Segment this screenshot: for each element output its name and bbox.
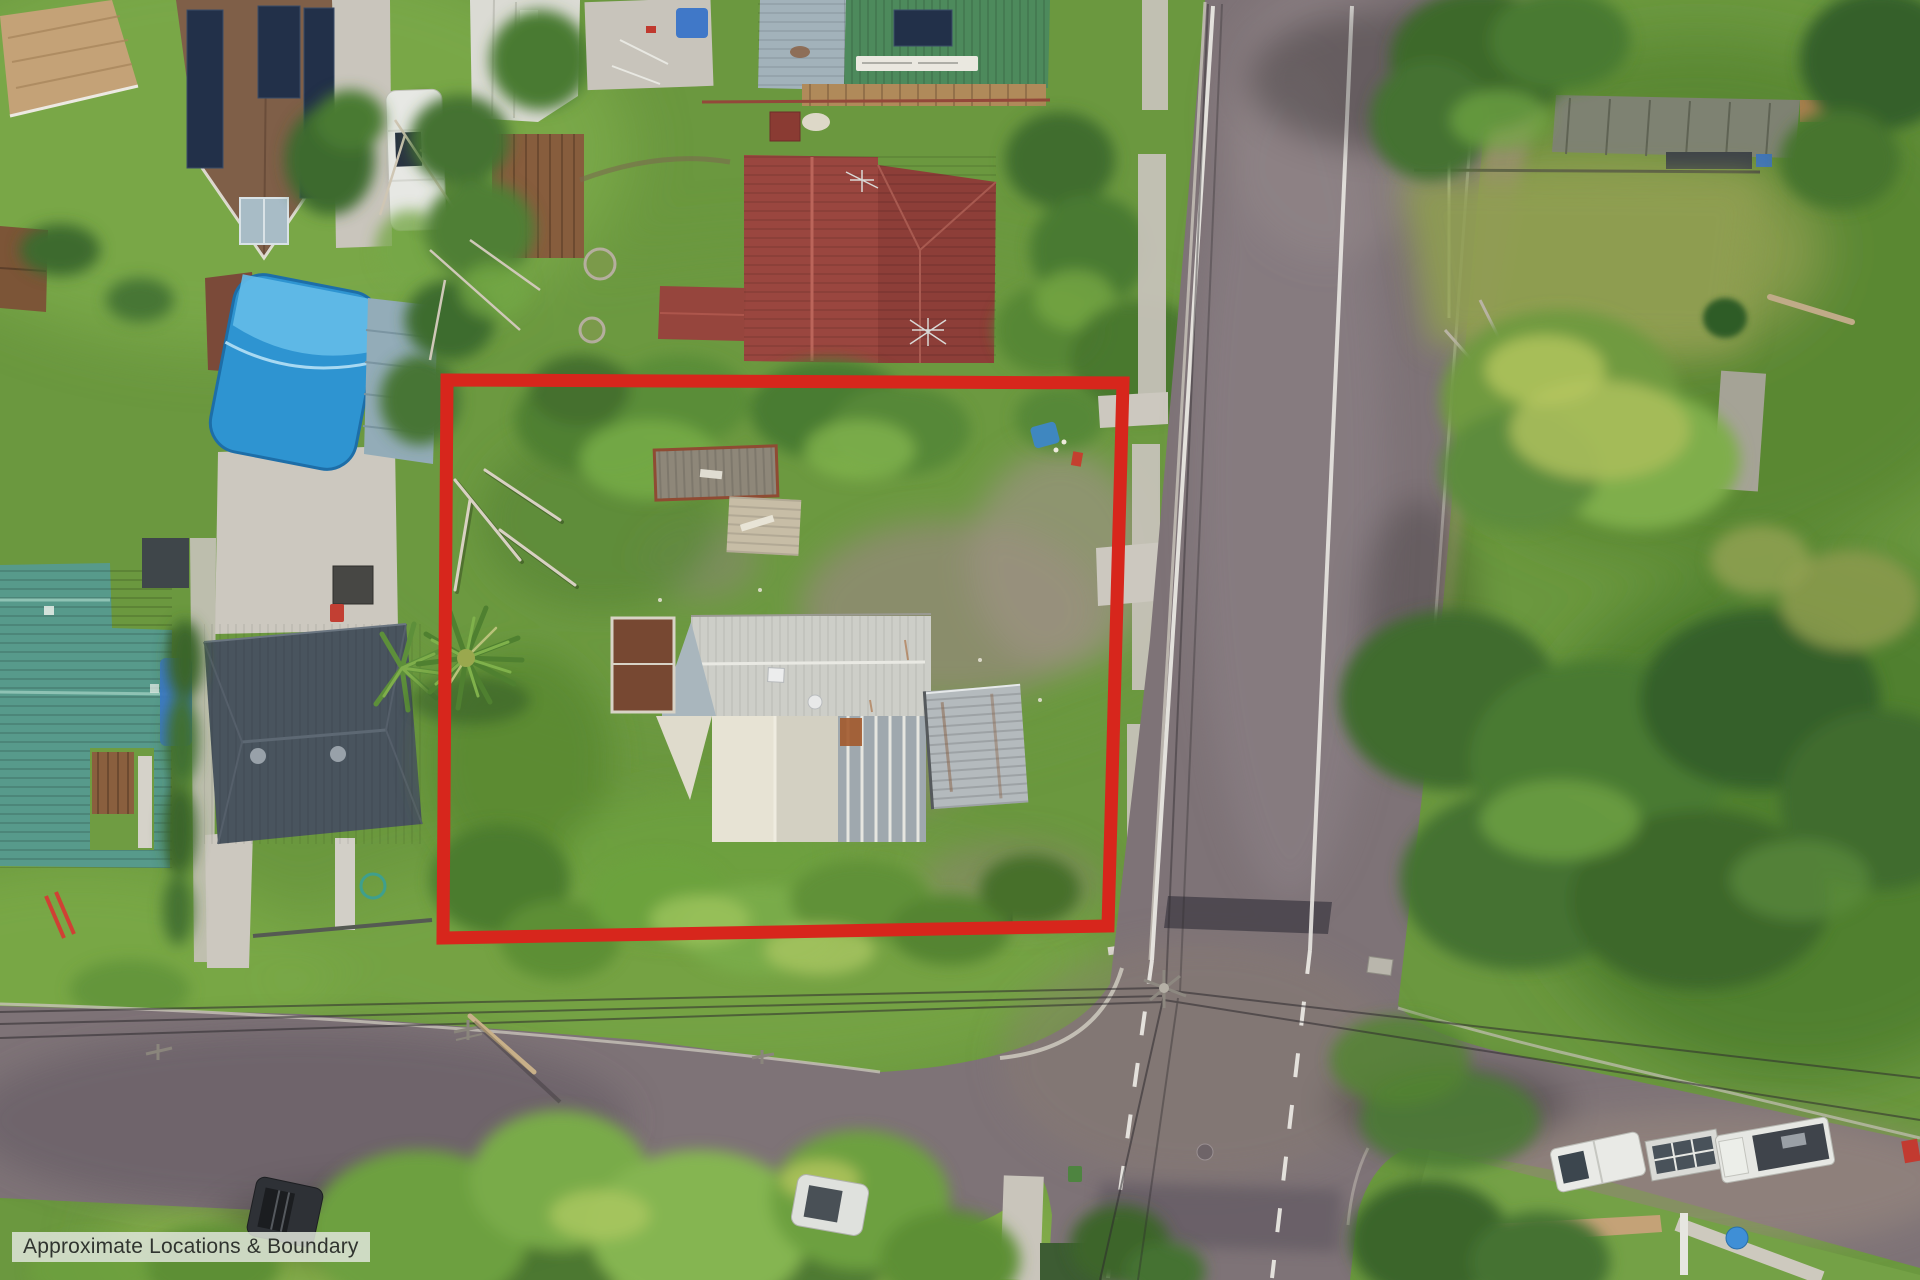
stone-garden-ring bbox=[585, 249, 615, 279]
utility-pit bbox=[1367, 956, 1393, 975]
blue-tarp-yard bbox=[676, 8, 708, 38]
timber-deck bbox=[726, 496, 801, 556]
roof-vent bbox=[250, 748, 266, 764]
rust-patch bbox=[840, 718, 862, 746]
back-fence bbox=[702, 100, 1050, 102]
aerial-photo: Approximate Locations & Boundary bbox=[0, 0, 1920, 1280]
box-trailer bbox=[333, 566, 373, 604]
swimming-pool bbox=[205, 270, 385, 475]
red-gazebo bbox=[770, 112, 800, 141]
roof-vent bbox=[768, 668, 785, 683]
garage-skillion bbox=[924, 685, 1028, 809]
boundary-disclaimer-label: Approximate Locations & Boundary bbox=[12, 1232, 370, 1262]
roof-vent bbox=[330, 746, 346, 762]
grey-roof-house bbox=[204, 624, 422, 844]
fence-line bbox=[1414, 170, 1760, 172]
white-fence bbox=[1680, 1213, 1688, 1275]
kiddie-pool bbox=[1726, 1227, 1748, 1249]
teal-roof-house bbox=[0, 563, 177, 868]
green-bin bbox=[1068, 1166, 1082, 1182]
fresh-asphalt-patch bbox=[1164, 896, 1332, 934]
manhole bbox=[1197, 1144, 1213, 1160]
dark-shed bbox=[142, 538, 189, 588]
rust-roof-structure bbox=[612, 618, 674, 712]
boat bbox=[1666, 152, 1752, 169]
green-solar-house bbox=[844, 0, 1050, 90]
front-gable bbox=[712, 716, 775, 842]
timber-shed bbox=[654, 446, 778, 500]
solar-array bbox=[894, 10, 952, 46]
red-bin bbox=[330, 604, 344, 622]
